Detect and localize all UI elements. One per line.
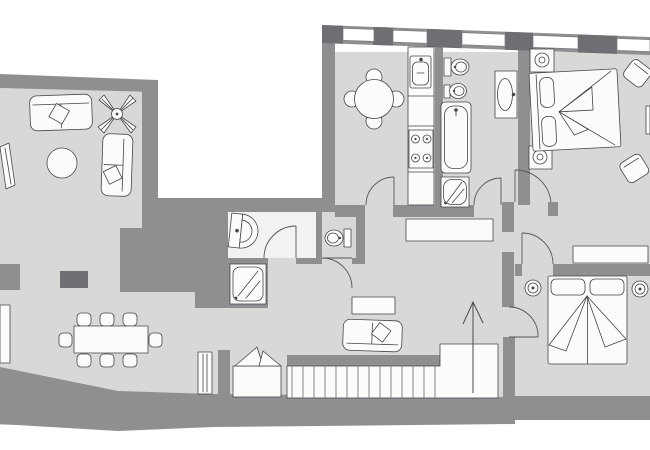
- radiator-body: [198, 352, 212, 394]
- bed-pillow: [539, 77, 555, 108]
- bathtub: [441, 102, 471, 173]
- window: [393, 30, 427, 43]
- window: [533, 35, 578, 49]
- toilet-dot: [454, 66, 456, 68]
- toilet: [444, 58, 469, 76]
- wall-wc-west: [316, 212, 322, 264]
- wardrobe: [573, 246, 648, 263]
- dining-chair: [149, 333, 162, 347]
- nightstand-top: [530, 49, 554, 72]
- side-table: [352, 297, 395, 314]
- wall-stair-east: [503, 337, 515, 400]
- bed-pillow: [551, 279, 585, 295]
- plant-center: [116, 113, 119, 116]
- wall-under-void: [142, 198, 335, 212]
- left-edge-opening: [0, 305, 10, 363]
- sofa: [342, 319, 402, 352]
- dining-chair: [77, 313, 91, 326]
- dining-chair: [100, 313, 114, 326]
- window-pier: [578, 35, 617, 54]
- double-bed: [548, 276, 627, 364]
- wall-bath-east: [518, 42, 530, 205]
- bidet-dot: [453, 90, 455, 92]
- burner-dot: [414, 157, 416, 159]
- winder-box: [233, 366, 281, 397]
- burner-dot: [426, 157, 428, 159]
- window-pier: [427, 29, 462, 48]
- wall-void-left: [142, 80, 158, 212]
- floor-plan-svg: [0, 0, 650, 450]
- wc-toilet-dot: [339, 237, 341, 239]
- window: [462, 33, 505, 47]
- bedside-lamp: [632, 281, 648, 297]
- windows: [322, 25, 650, 54]
- bathtub-faucet: [454, 108, 458, 112]
- burner-dot: [426, 138, 428, 140]
- burner-dot: [414, 138, 416, 140]
- toilet-tank: [444, 58, 451, 76]
- wall-hall-stub-b: [502, 252, 514, 307]
- kitchen-table: [355, 80, 394, 119]
- window: [343, 28, 374, 41]
- double-bed: [529, 69, 621, 151]
- shower-drain: [444, 202, 447, 205]
- edge-furniture: [646, 106, 650, 134]
- wall-sinkroom-south-seg: [296, 258, 316, 264]
- dining-table: [74, 326, 148, 353]
- bed-pillow: [590, 279, 624, 295]
- bidet: [444, 84, 467, 99]
- floor-plan-page: [0, 0, 650, 450]
- sink-faucet: [419, 58, 423, 62]
- wall-bedroom-divider-stub: [515, 264, 522, 276]
- wall-hall-stub-a: [502, 202, 514, 232]
- dining-chair: [100, 354, 114, 367]
- shower-drain: [235, 297, 238, 300]
- wall-bedroom-divider: [553, 264, 650, 276]
- window-pier: [373, 27, 393, 46]
- bidet-base: [444, 85, 450, 98]
- window: [617, 38, 650, 51]
- dining-chair: [77, 354, 91, 367]
- basin-faucet: [512, 93, 516, 97]
- lamp-center: [532, 287, 535, 290]
- dining-chair: [123, 354, 137, 367]
- wc-toilet-tank: [344, 229, 351, 247]
- sofa-two-seat: [29, 94, 92, 131]
- wall-stair-rail: [287, 355, 440, 366]
- wall-bottom-middle: [213, 394, 515, 427]
- dining-chair: [59, 333, 72, 347]
- wall-wc-east: [356, 212, 365, 264]
- column-left-edge: [0, 264, 20, 290]
- bed-pillow: [541, 116, 557, 147]
- wc: [325, 229, 351, 247]
- column-dining: [60, 271, 88, 288]
- window-pier: [505, 32, 533, 51]
- wall-winder-stub: [218, 350, 230, 397]
- wall-kitchen-west: [322, 36, 335, 212]
- shower: [441, 177, 469, 207]
- nightstand: [530, 49, 554, 72]
- kitchen-sink: [410, 56, 431, 88]
- bedside-lamp: [525, 280, 541, 296]
- stove: [409, 130, 433, 168]
- sofa-side: [101, 134, 133, 197]
- washbasin-east: [495, 71, 517, 118]
- hallway: [406, 219, 493, 241]
- kitchen-counter: [408, 47, 434, 205]
- window-pier: [322, 25, 343, 44]
- console-table: [406, 219, 493, 241]
- radiator: [198, 352, 212, 394]
- dining-chair: [123, 313, 137, 326]
- wall-wc-door-stub: [352, 258, 360, 264]
- shower-tray-small: [230, 264, 266, 304]
- wall-bedroom2-south: [515, 396, 650, 420]
- coffee-table: [47, 148, 77, 178]
- wall-door-jamb-bedroom1: [548, 202, 558, 216]
- lamp-center: [639, 288, 642, 291]
